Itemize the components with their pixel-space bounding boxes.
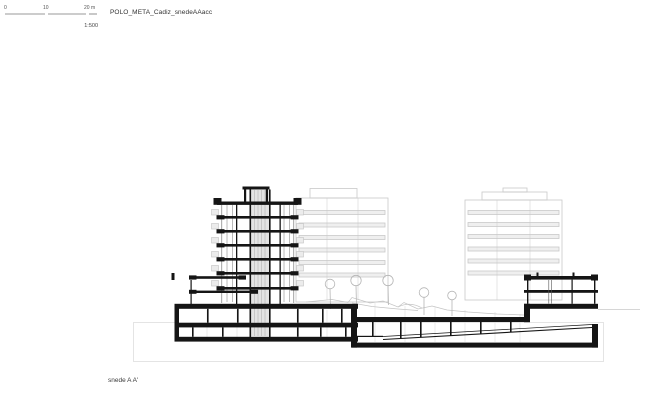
scale-tick-0: 0: [4, 5, 7, 11]
scale-tick-20: 20 m: [84, 5, 95, 11]
scale-tick-10: 10: [43, 5, 49, 11]
site-boundary-box: [134, 323, 604, 362]
background-building-left: [296, 189, 388, 303]
parking-ramp: [383, 325, 592, 340]
trees: [325, 275, 456, 316]
underground-parking-with-ramp: [175, 304, 599, 348]
elevator-core: [250, 190, 271, 338]
right-wing-section: [524, 273, 598, 304]
section-caption: snede A A': [108, 377, 138, 384]
drawing-title: POLO_META_Cadiz_snedeAAacc: [110, 9, 212, 16]
section-drawing: [0, 0, 650, 400]
scale-ratio-label: 1:500: [76, 23, 98, 29]
